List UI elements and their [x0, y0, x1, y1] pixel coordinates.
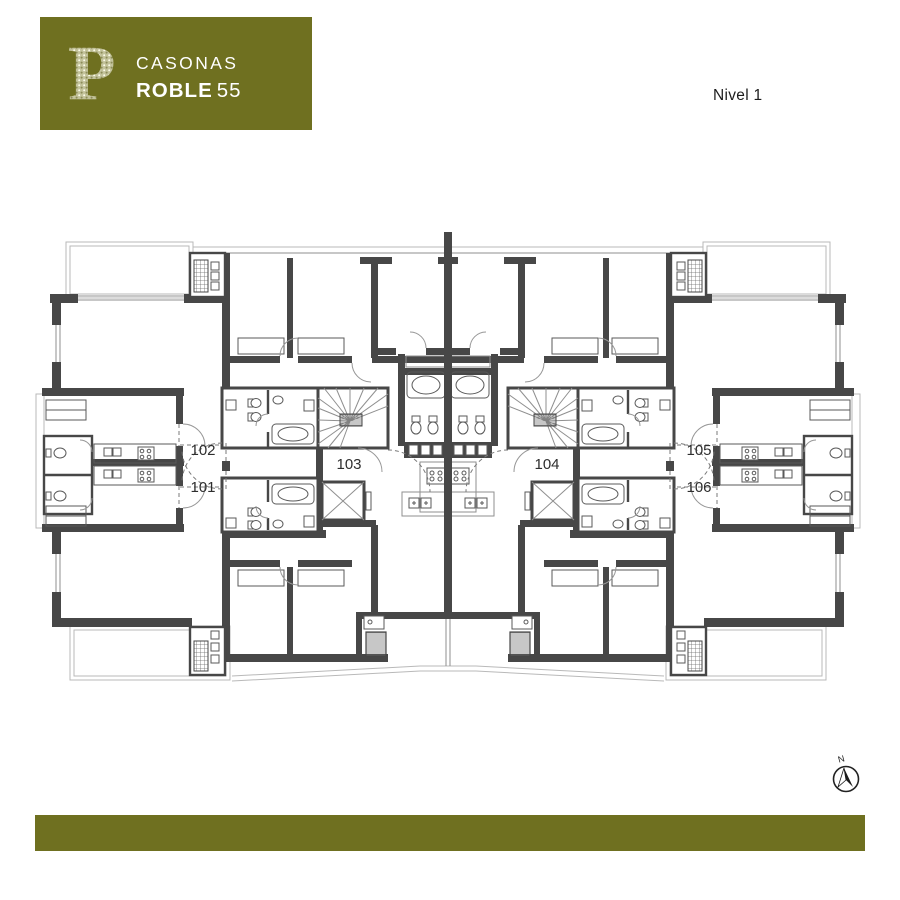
unit-label-102: 102 — [190, 442, 215, 459]
stair-core — [318, 388, 388, 448]
bottom-stair-shaft — [364, 616, 386, 656]
brand-name-number: 55 — [217, 79, 242, 102]
toilet-icon — [411, 416, 421, 434]
toilet-icon — [46, 491, 66, 501]
unit-label-101: 101 — [190, 479, 215, 496]
sink-icon — [104, 448, 121, 456]
toilet-icon — [248, 521, 261, 530]
stove-icon — [138, 469, 154, 482]
brand-text: CASONAS ROBLE55 — [136, 53, 242, 103]
level-label: Nivel 1 — [713, 87, 762, 105]
unit-label-104: 104 — [534, 456, 559, 473]
toilet-icon — [46, 448, 66, 458]
floor-plan-right-half — [446, 242, 860, 681]
stove-icon — [138, 447, 154, 460]
brand-monogram: P — [68, 39, 116, 113]
brand-logo-box: P CASONAS ROBLE55 — [40, 17, 312, 130]
unit-label-105: 105 — [686, 442, 711, 459]
elevator — [322, 482, 371, 520]
toilet-icon — [248, 508, 261, 517]
center-core — [402, 356, 448, 516]
walls — [42, 253, 450, 662]
sink-icon — [273, 396, 283, 404]
vent-shaft-bottom — [190, 627, 225, 675]
bathtub-icon — [407, 372, 445, 398]
toilet-icon — [248, 399, 261, 408]
north-label: N — [837, 753, 846, 764]
brand-name-line1: CASONAS — [136, 53, 242, 74]
sink-icon — [421, 498, 431, 508]
toilet-icon — [248, 413, 261, 422]
sink-icon — [226, 400, 236, 410]
stove-icon — [427, 468, 445, 484]
brand-monogram-icon: P — [68, 39, 130, 113]
kitchen-counter — [94, 466, 176, 485]
unit-label-106: 106 — [686, 479, 711, 496]
bedroom-furniture — [238, 338, 344, 586]
sofa — [46, 400, 86, 420]
footer-accent-bar — [35, 815, 865, 851]
sink-icon — [226, 518, 236, 528]
sink-icon — [104, 470, 121, 478]
unit-label-103: 103 — [336, 456, 361, 473]
floor-plan-left-half — [36, 242, 450, 681]
floor-plan: 101 102 103 104 105 106 N — [0, 0, 900, 900]
north-compass-icon: N — [834, 753, 859, 791]
bathroom-101 — [222, 478, 318, 532]
side-unit-kitchen-wc — [44, 400, 176, 526]
toilet-icon — [428, 416, 438, 434]
sink-icon — [273, 520, 283, 528]
party-wall-spine — [444, 232, 452, 666]
brand-name-line2: ROBLE55 — [136, 79, 242, 103]
sink-icon — [409, 498, 419, 508]
bathroom-102 — [222, 388, 318, 448]
vent-shaft-top — [190, 253, 225, 297]
brand-name-bold: ROBLE — [136, 79, 213, 102]
